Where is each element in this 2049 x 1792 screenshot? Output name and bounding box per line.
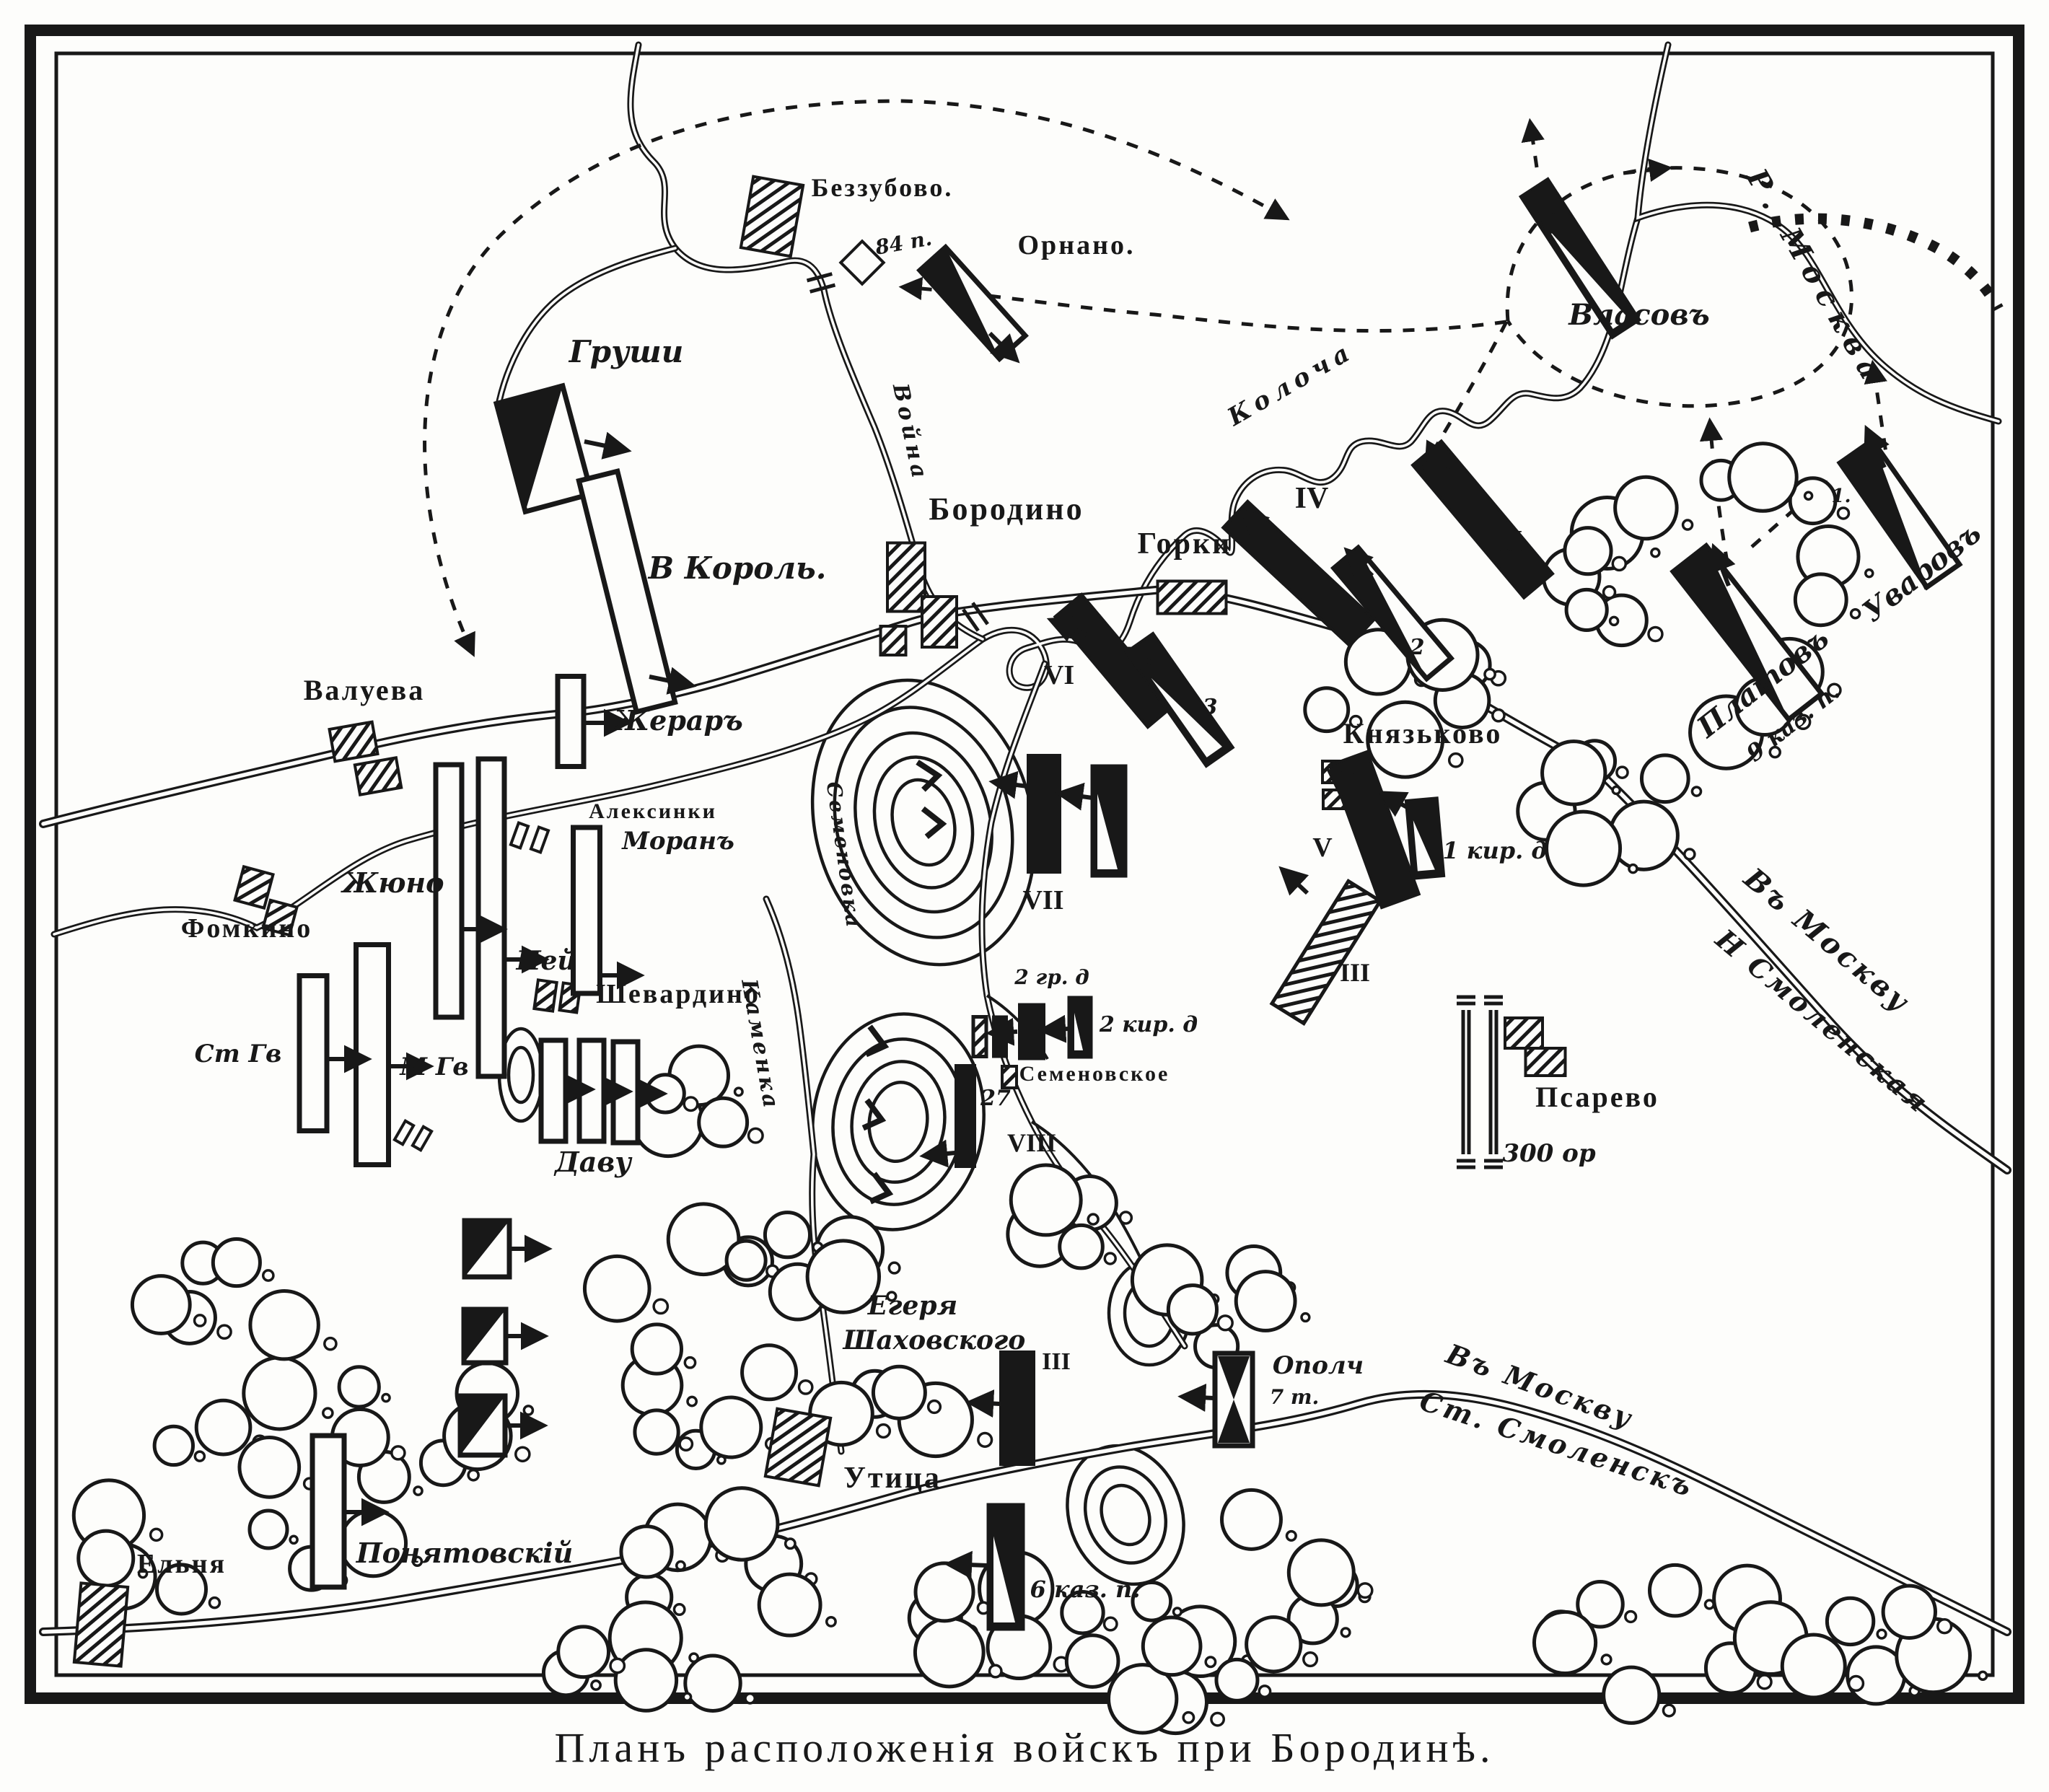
- map-label-or300: 300 ор: [1502, 1139, 1595, 1168]
- map-label-morand: Моранъ: [621, 827, 734, 856]
- map-label-kir2: 2 кир. д: [1099, 1012, 1198, 1037]
- village-elnya: [74, 1583, 128, 1666]
- unit-semen-black-1: [993, 1017, 1006, 1057]
- forest-cluster: [1008, 1165, 1132, 1268]
- voyna-branch: [499, 248, 675, 401]
- map-label-shahovskogo: Шаховского: [842, 1325, 1026, 1356]
- moskva-river: [1638, 45, 1998, 421]
- village-semenovskoe: [1002, 1066, 1017, 1088]
- village-fomkino-1: [235, 866, 273, 908]
- attack-arrow: [1043, 1029, 1069, 1030]
- route-to-corps-ii: [1427, 322, 1506, 462]
- map-label-p84: 84 п.: [873, 227, 934, 260]
- map-label-c-iii-2: III: [1042, 1348, 1071, 1375]
- attack-arrow: [1183, 1397, 1214, 1398]
- unit-poniatowski: [312, 1436, 344, 1587]
- troop-units: [299, 180, 1960, 1628]
- map-label-v-moskvu: Въ Москву: [1737, 861, 1917, 1019]
- route-river-up: [1530, 123, 1537, 167]
- unit-unit-4: [1093, 767, 1125, 875]
- unit-st-gv: [299, 976, 327, 1131]
- map-label-knyazkovo: Князьково: [1343, 717, 1503, 750]
- map-label-st-gv: Ст Гв: [195, 1040, 282, 1068]
- voyna-branch: [499, 248, 675, 401]
- unit-kaz-6: [989, 1506, 1022, 1628]
- attack-arrow: [949, 1564, 987, 1565]
- map-label-v-korol: В Король.: [648, 550, 827, 586]
- forest-cluster: [810, 1366, 992, 1456]
- map-label-bezzubovo: Беззубово.: [812, 173, 954, 202]
- map-label-m-gv: М Гв: [399, 1053, 468, 1081]
- map-label-junot: Жюно: [341, 866, 444, 899]
- unit-murat-2: [464, 1309, 506, 1363]
- unit-kir-2: [1070, 998, 1090, 1056]
- map-label-grushi: Груши: [569, 334, 683, 369]
- map-label-fomkino: Фомкино: [181, 913, 312, 944]
- map-label-n1: 1.: [1831, 486, 1851, 507]
- map-label-semenovskoe: Семеновское: [1019, 1062, 1170, 1086]
- map-label-ney: Ней: [515, 946, 576, 976]
- hill-raevsky-battery: [781, 655, 1065, 990]
- map-label-t7: 7 т.: [1270, 1385, 1320, 1409]
- unit-murat-1: [465, 1221, 509, 1277]
- unit-v-korol: [579, 471, 675, 712]
- artillery-park: [1457, 997, 1503, 1167]
- unit-corps-vii: [1028, 755, 1060, 872]
- fleche-mark: [869, 1029, 885, 1053]
- map-label-kaz6: 6 каз. п.: [1030, 1576, 1141, 1603]
- artillery-symbol: [1484, 997, 1503, 1167]
- unit-corps-ii: [1413, 441, 1553, 597]
- map-label-kir1: 1 кир. д: [1442, 837, 1547, 864]
- unit-opolchenie: [1215, 1353, 1252, 1446]
- map-canvas: Беззубово.84 п.Орнано.ВласовъР. МоскваГр…: [0, 0, 2049, 1792]
- artillery-symbol: [1457, 997, 1475, 1167]
- map-label-elnya: Ельня: [137, 1549, 227, 1579]
- forest-cluster: [1066, 1617, 1270, 1734]
- village-psarevo-2: [1526, 1048, 1566, 1076]
- fortification-marks: [866, 759, 944, 1200]
- attack-arrow: [584, 442, 626, 450]
- map-label-psarevo: Псарево: [1535, 1081, 1659, 1113]
- map-label-borodino: Бородино: [929, 491, 1084, 527]
- map-label-r-moskva: Р. Москва: [1739, 162, 1892, 392]
- village-borodino-1: [887, 543, 925, 612]
- unit-semen-hatch: [973, 1017, 986, 1057]
- map-label-davout: Даву: [553, 1146, 633, 1178]
- village-valueva-2: [355, 757, 401, 794]
- village-alexinki-2: [531, 827, 548, 853]
- unit-junot-2: [478, 759, 504, 1076]
- village-psarevo-1: [1505, 1018, 1543, 1048]
- map-label-gr2: 2 гр. д: [1014, 965, 1089, 989]
- map-label-gorki: Горки: [1138, 527, 1232, 561]
- map-label-alexinki: Алексинки: [589, 799, 717, 823]
- village-mark-1: [395, 1121, 413, 1144]
- unit-kir-1: [1408, 799, 1443, 877]
- village-alexinki-1: [511, 823, 528, 848]
- map-label-c-vi: VI: [1044, 660, 1074, 690]
- unit-murat-3: [460, 1396, 505, 1455]
- unit-corps-iii-utitsa: [1001, 1352, 1034, 1464]
- map-label-n2: 2: [1409, 635, 1425, 660]
- map-label-c-iv: IV: [1295, 482, 1329, 515]
- map-label-kolocha: Колоча: [1222, 336, 1359, 432]
- attack-arrow: [971, 1402, 1000, 1404]
- unit-div-27: [956, 1066, 975, 1167]
- map-label-vlasov: Власовъ: [1568, 298, 1709, 332]
- fleche-mark: [923, 807, 944, 835]
- map-label-c-iii-1: III: [1340, 958, 1370, 987]
- map-label-c-viii: VIII: [1007, 1128, 1056, 1157]
- unit-morand: [574, 827, 600, 993]
- unit-corps-iii-militia: [1272, 881, 1380, 1023]
- attack-arrow: [991, 1032, 1017, 1033]
- map-label-n27: 27: [980, 1086, 1011, 1111]
- borodino-map-page: Беззубово.84 п.Орнано.ВласовъР. МоскваГр…: [0, 0, 2049, 1792]
- map-label-valueva: Валуева: [304, 674, 426, 706]
- village-gorki: [1158, 581, 1227, 614]
- forest-cluster: [633, 1046, 763, 1156]
- map-label-shevardino: Шевардино: [596, 979, 760, 1009]
- map-label-poniatowski: Понятовскій: [356, 1537, 574, 1569]
- map-label-c-vii: VII: [1022, 885, 1063, 915]
- village-bezzubovo: [741, 177, 803, 257]
- map-label-ornano: Орнано.: [1018, 230, 1136, 260]
- unit-semen-black-2: [1019, 1005, 1044, 1059]
- map-label-voyna: Война: [887, 381, 933, 485]
- village-shevardino-1: [534, 980, 556, 1011]
- map-label-opolch: Ополч: [1273, 1351, 1364, 1380]
- map-label-utitsa: Утица: [843, 1462, 942, 1495]
- village-valueva-1: [330, 722, 378, 762]
- map-label-c-ii: II: [1499, 525, 1523, 558]
- unit-ornano: [920, 247, 1025, 359]
- forest-cluster: [1132, 1245, 1309, 1368]
- unit-m-gv: [356, 945, 389, 1165]
- attack-arrow: [1061, 794, 1092, 798]
- moskva-river: [1638, 45, 1998, 421]
- village-utitsa: [765, 1409, 830, 1486]
- unit-gerard: [558, 677, 584, 767]
- map-label-gerard: Жераръ: [611, 704, 742, 737]
- attack-arrow: [1283, 870, 1307, 893]
- forest-cluster: [543, 1602, 755, 1711]
- map-label-c-v: V: [1312, 833, 1333, 863]
- village-borodino-2: [922, 597, 957, 647]
- village-mark-2: [413, 1127, 431, 1150]
- forest-cluster: [132, 1239, 336, 1359]
- fleche-mark: [866, 1102, 882, 1127]
- map-label-egerya: Егеря: [867, 1291, 957, 1321]
- map-label-n3: 3: [1203, 695, 1218, 720]
- village-borodino-3: [881, 626, 906, 655]
- map-caption: Планъ расположенія войскъ при Бородинѣ.: [555, 1724, 1495, 1771]
- unit-davout-1: [541, 1040, 566, 1141]
- unit-grushi: [496, 386, 592, 511]
- map-label-semenovka: Семеновка: [822, 780, 866, 931]
- attack-arrow: [925, 1153, 955, 1156]
